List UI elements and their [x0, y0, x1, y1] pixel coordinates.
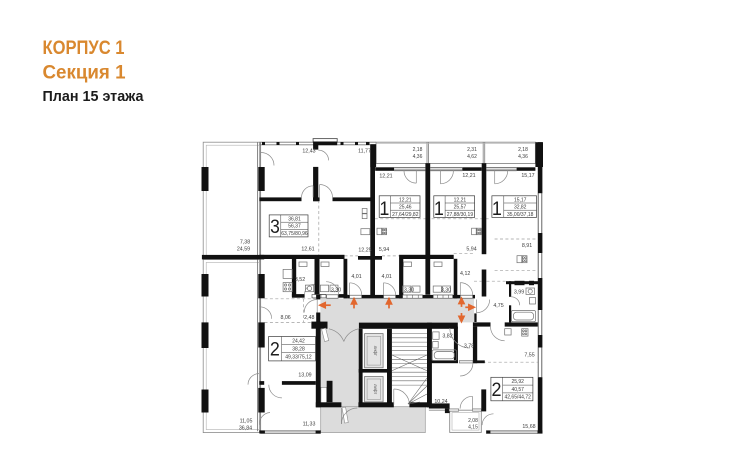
svg-text:12,21: 12,21 [454, 197, 467, 203]
svg-text:36,81: 36,81 [288, 216, 301, 222]
svg-text:8,06: 8,06 [280, 315, 290, 321]
svg-text:2,48: 2,48 [304, 315, 314, 321]
svg-text:8,91: 8,91 [522, 243, 532, 249]
svg-text:3,99: 3,99 [514, 290, 524, 296]
svg-text:32,82: 32,82 [514, 205, 527, 211]
svg-text:4,15: 4,15 [468, 425, 478, 431]
svg-text:40,57: 40,57 [511, 387, 524, 393]
svg-text:15,17: 15,17 [514, 197, 527, 203]
svg-text:24,59: 24,59 [237, 247, 250, 253]
svg-text:36,84: 36,84 [239, 425, 252, 431]
svg-text:12,25: 12,25 [358, 248, 371, 254]
svg-text:4,75: 4,75 [493, 303, 503, 309]
svg-text:49,33/75,12: 49,33/75,12 [285, 355, 312, 361]
svg-text:3,82: 3,82 [442, 334, 452, 340]
svg-text:4,01: 4,01 [382, 274, 392, 280]
svg-text:4,36: 4,36 [518, 154, 528, 160]
svg-text:3,78: 3,78 [464, 344, 474, 350]
svg-text:11,05: 11,05 [240, 418, 253, 424]
svg-text:1: 1 [379, 197, 389, 219]
svg-text:10,24: 10,24 [434, 399, 447, 405]
svg-text:25,57: 25,57 [454, 205, 467, 211]
svg-text:2,08: 2,08 [468, 418, 478, 424]
svg-text:КОРПУС 1: КОРПУС 1 [43, 38, 125, 59]
svg-text:4,01: 4,01 [351, 274, 361, 280]
svg-text:1: 1 [492, 197, 502, 219]
svg-text:3,30: 3,30 [404, 288, 414, 294]
svg-text:12,21: 12,21 [462, 173, 475, 179]
svg-text:План 15 этажа: План 15 этажа [43, 88, 145, 105]
svg-text:5,94: 5,94 [379, 247, 389, 253]
svg-text:Секция 1: Секция 1 [43, 63, 126, 84]
svg-text:15,17: 15,17 [521, 173, 534, 179]
svg-text:лифт: лифт [373, 346, 378, 356]
svg-text:56,37: 56,37 [288, 224, 301, 230]
svg-text:1: 1 [434, 197, 444, 219]
svg-text:4,12: 4,12 [460, 271, 470, 277]
svg-text:27,64/29,82: 27,64/29,82 [392, 212, 419, 218]
svg-text:3: 3 [270, 215, 280, 237]
svg-text:2,18: 2,18 [518, 147, 528, 153]
svg-text:5,94: 5,94 [466, 246, 476, 252]
svg-text:38,28: 38,28 [292, 347, 305, 353]
svg-text:12,61: 12,61 [301, 246, 314, 252]
svg-text:12,21: 12,21 [399, 197, 412, 203]
svg-text:25,46: 25,46 [399, 205, 412, 211]
svg-text:2: 2 [270, 338, 280, 360]
svg-text:2: 2 [492, 378, 502, 400]
svg-text:3,30: 3,30 [441, 288, 451, 294]
svg-text:27,88/30,19: 27,88/30,19 [447, 212, 474, 218]
svg-text:лифт: лифт [373, 384, 378, 394]
svg-text:4,62: 4,62 [467, 154, 477, 160]
svg-text:7,55: 7,55 [524, 353, 534, 359]
svg-text:13,09: 13,09 [298, 372, 311, 378]
svg-text:12,21: 12,21 [379, 174, 392, 180]
svg-text:24,42: 24,42 [292, 339, 305, 345]
svg-text:3,52: 3,52 [295, 277, 305, 283]
svg-text:4,36: 4,36 [413, 154, 423, 160]
svg-text:2,31: 2,31 [467, 147, 477, 153]
svg-text:15,68: 15,68 [522, 424, 535, 430]
svg-text:25,92: 25,92 [511, 379, 524, 385]
svg-text:35,00/37,18: 35,00/37,18 [507, 212, 534, 218]
svg-text:11,77: 11,77 [358, 148, 371, 154]
svg-text:7,38: 7,38 [240, 240, 250, 246]
svg-text:11,33: 11,33 [303, 422, 316, 428]
svg-text:12,43: 12,43 [302, 148, 315, 154]
svg-text:2,18: 2,18 [413, 147, 423, 153]
svg-text:63,75/80,96: 63,75/80,96 [281, 231, 308, 237]
svg-text:3,30: 3,30 [331, 288, 341, 294]
svg-text:42,65/44,72: 42,65/44,72 [504, 395, 531, 401]
